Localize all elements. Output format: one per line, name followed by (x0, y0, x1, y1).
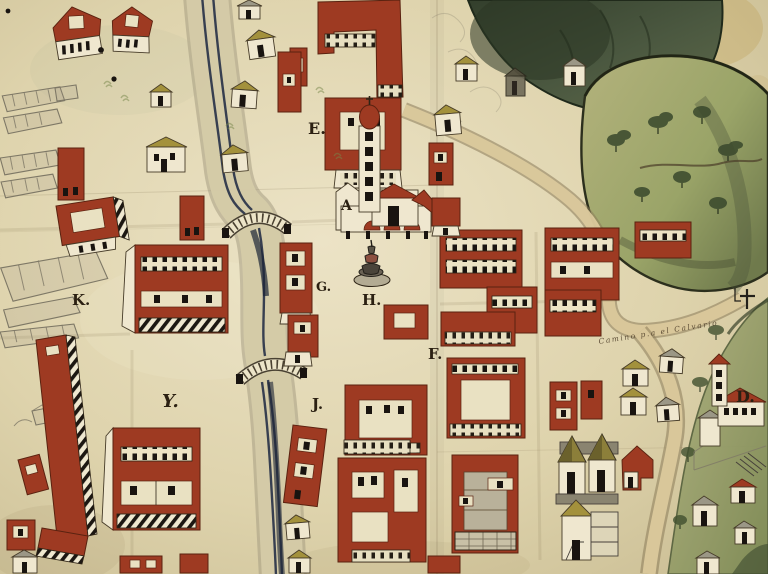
building-G (280, 243, 312, 324)
label-D: D. (736, 387, 755, 406)
red-house-tall (429, 143, 453, 185)
red-block (550, 382, 577, 430)
red-block (581, 381, 602, 419)
label-E: E. (308, 119, 326, 138)
label-K: K. (72, 291, 90, 309)
map-canvas: E. A G. H. K. Y. J. F. D. Camino p.a el … (0, 0, 768, 574)
label-H: H. (362, 291, 381, 309)
red-block-windows (440, 230, 522, 288)
red-block (180, 196, 204, 240)
red-block-windows (545, 290, 601, 336)
red-strip (120, 556, 162, 573)
antique-town-map: E. A G. H. K. Y. J. F. D. Camino p.a el … (0, 0, 768, 574)
courtyard-house-small (7, 520, 35, 550)
red-block-windows (545, 228, 619, 300)
label-F: F. (428, 345, 442, 363)
red-block-windows (635, 222, 691, 258)
red-house-tall (278, 52, 301, 112)
red-block (384, 305, 428, 339)
plaza-block (122, 245, 228, 333)
building-F (441, 312, 515, 346)
courtyard-block-Y (102, 428, 200, 530)
red-block (432, 198, 460, 236)
red-block (58, 148, 84, 200)
courtyard-block (447, 358, 525, 438)
courtyard-block-brickbase (452, 455, 518, 553)
complex-courtyard-block (338, 440, 426, 562)
label-J: J. (310, 395, 323, 413)
red-strip (180, 554, 208, 573)
label-A: A (340, 198, 353, 214)
label-Y: Y. (162, 391, 179, 412)
red-strip (428, 556, 460, 573)
label-G: G. (316, 280, 331, 295)
